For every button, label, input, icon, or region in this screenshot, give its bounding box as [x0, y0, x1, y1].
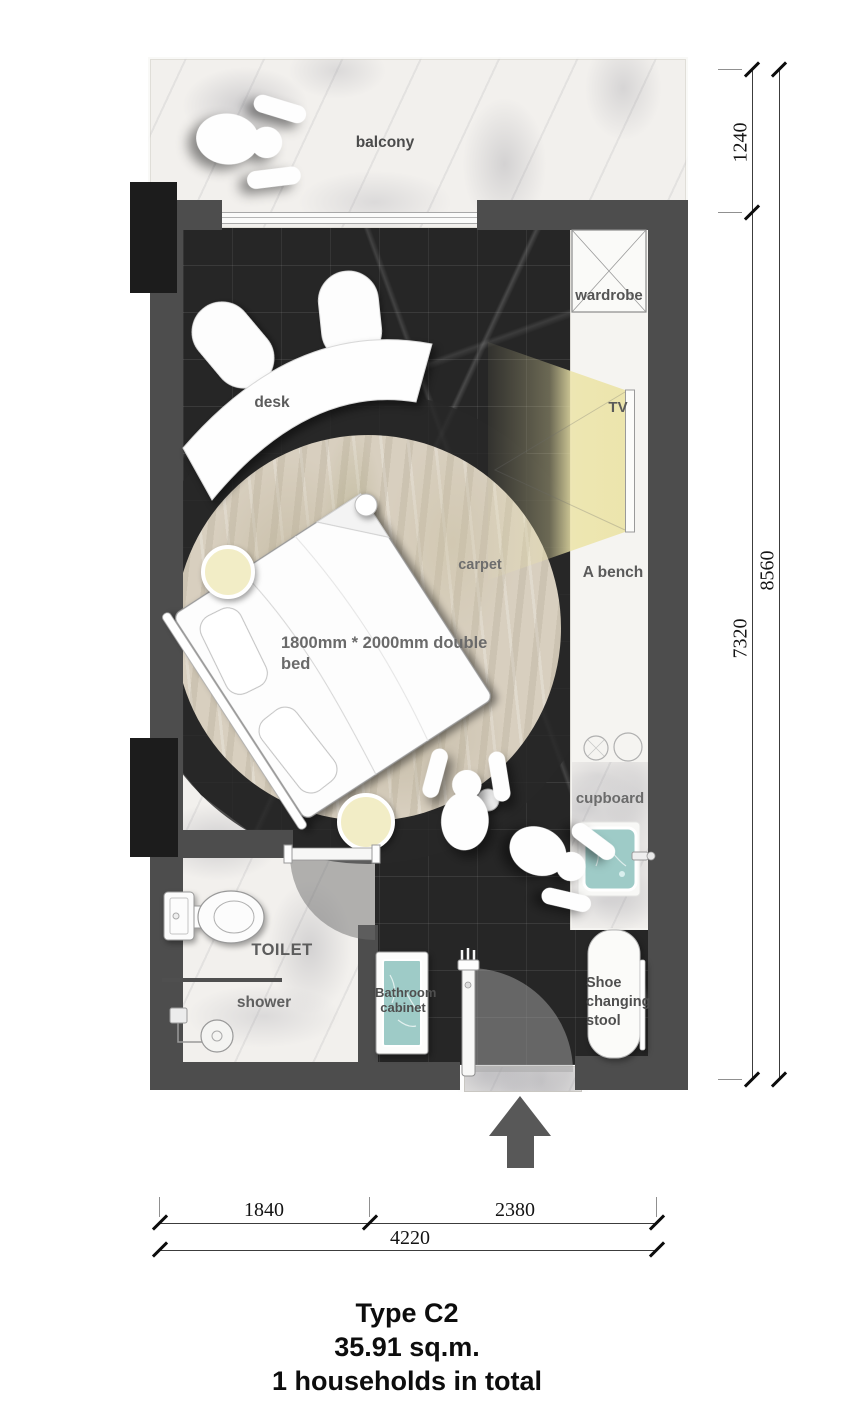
entrance-arrow-icon: [489, 1096, 551, 1136]
dim-value-4220: 4220: [360, 1227, 460, 1250]
bed-label: 1800mm * 2000mm double bed: [281, 633, 493, 675]
shower-label: shower: [214, 994, 314, 1012]
tv-label: TV: [596, 399, 640, 416]
wall-right: [648, 200, 688, 1090]
column-bottom: [130, 738, 178, 857]
carpet-label: carpet: [448, 557, 512, 574]
floor-plan-canvas: balcony wardrobe TV A bench desk carpet …: [0, 0, 859, 1417]
toilet-label: TOILET: [234, 941, 330, 960]
desk-label: desk: [240, 394, 304, 412]
dim-guide: [656, 1197, 657, 1217]
balcony-window: [222, 212, 478, 224]
dim-value-1240: 1240: [730, 113, 753, 173]
carpet-rug: [183, 435, 561, 821]
wall-left: [150, 200, 183, 1090]
dim-value-1840: 1840: [214, 1199, 314, 1222]
wall-bottom-left: [150, 1062, 460, 1090]
wall-bottom-right: [575, 1056, 688, 1090]
wall-toilet-top: [183, 830, 293, 858]
dim-value-7320: 7320: [730, 609, 753, 669]
dim-guide: [718, 1079, 742, 1080]
column-top: [130, 182, 177, 293]
balcony-label: balcony: [340, 134, 430, 152]
wardrobe-label: wardrobe: [570, 287, 648, 304]
entrance-arrow-stem: [507, 1134, 534, 1168]
entry-threshold: [458, 1066, 588, 1092]
dim-guide: [718, 69, 742, 70]
plan-type-title: Type C2: [97, 1296, 717, 1330]
cupboard-label: cupboard: [572, 790, 648, 807]
shoe-stool-label: Shoe changing stool: [586, 974, 666, 1031]
dim-guide: [369, 1197, 370, 1217]
bench-label: A bench: [574, 564, 652, 582]
plan-area: 35.91 sq.m.: [97, 1330, 717, 1364]
dim-line-vertical-inner: [752, 70, 753, 1080]
dim-value-8560: 8560: [757, 541, 780, 601]
plan-households: 1 households in total: [97, 1364, 717, 1398]
dim-guide: [159, 1197, 160, 1217]
counter-top: [572, 762, 648, 928]
bathroom-cabinet-label: Bathroom cabinet: [375, 985, 431, 1015]
title-block: Type C2 35.91 sq.m. 1 households in tota…: [97, 1296, 717, 1398]
dim-value-2380: 2380: [465, 1199, 565, 1222]
dim-line-horizontal-inner: [160, 1223, 657, 1224]
dim-line-horizontal-outer: [160, 1250, 657, 1251]
dim-guide: [718, 212, 742, 213]
